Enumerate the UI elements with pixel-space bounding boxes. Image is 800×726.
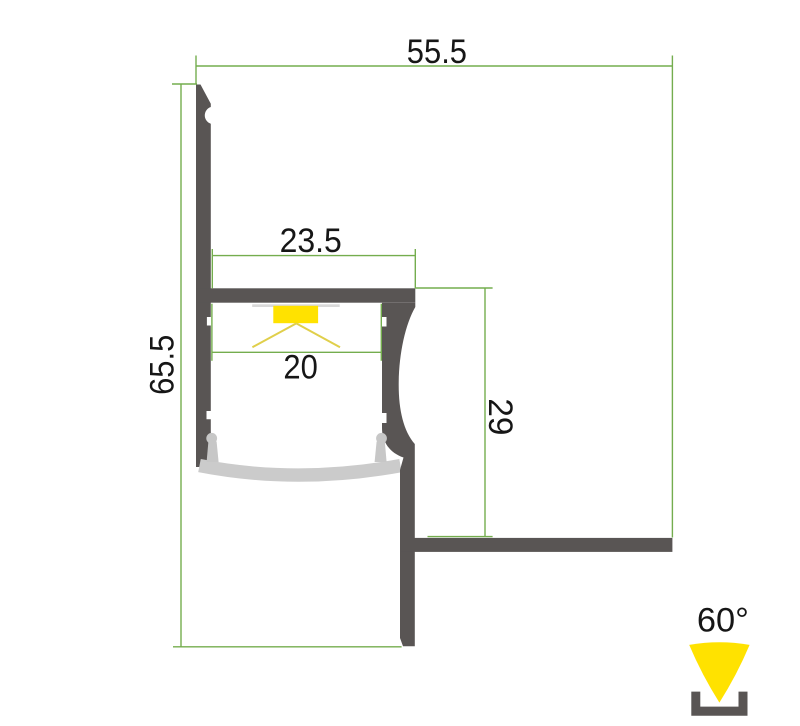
svg-text:65.5: 65.5: [142, 335, 181, 395]
svg-text:23.5: 23.5: [280, 222, 342, 260]
svg-text:55.5: 55.5: [407, 31, 467, 70]
svg-text:29: 29: [481, 398, 520, 435]
svg-text:60°: 60°: [697, 601, 749, 639]
svg-text:20: 20: [283, 347, 317, 386]
